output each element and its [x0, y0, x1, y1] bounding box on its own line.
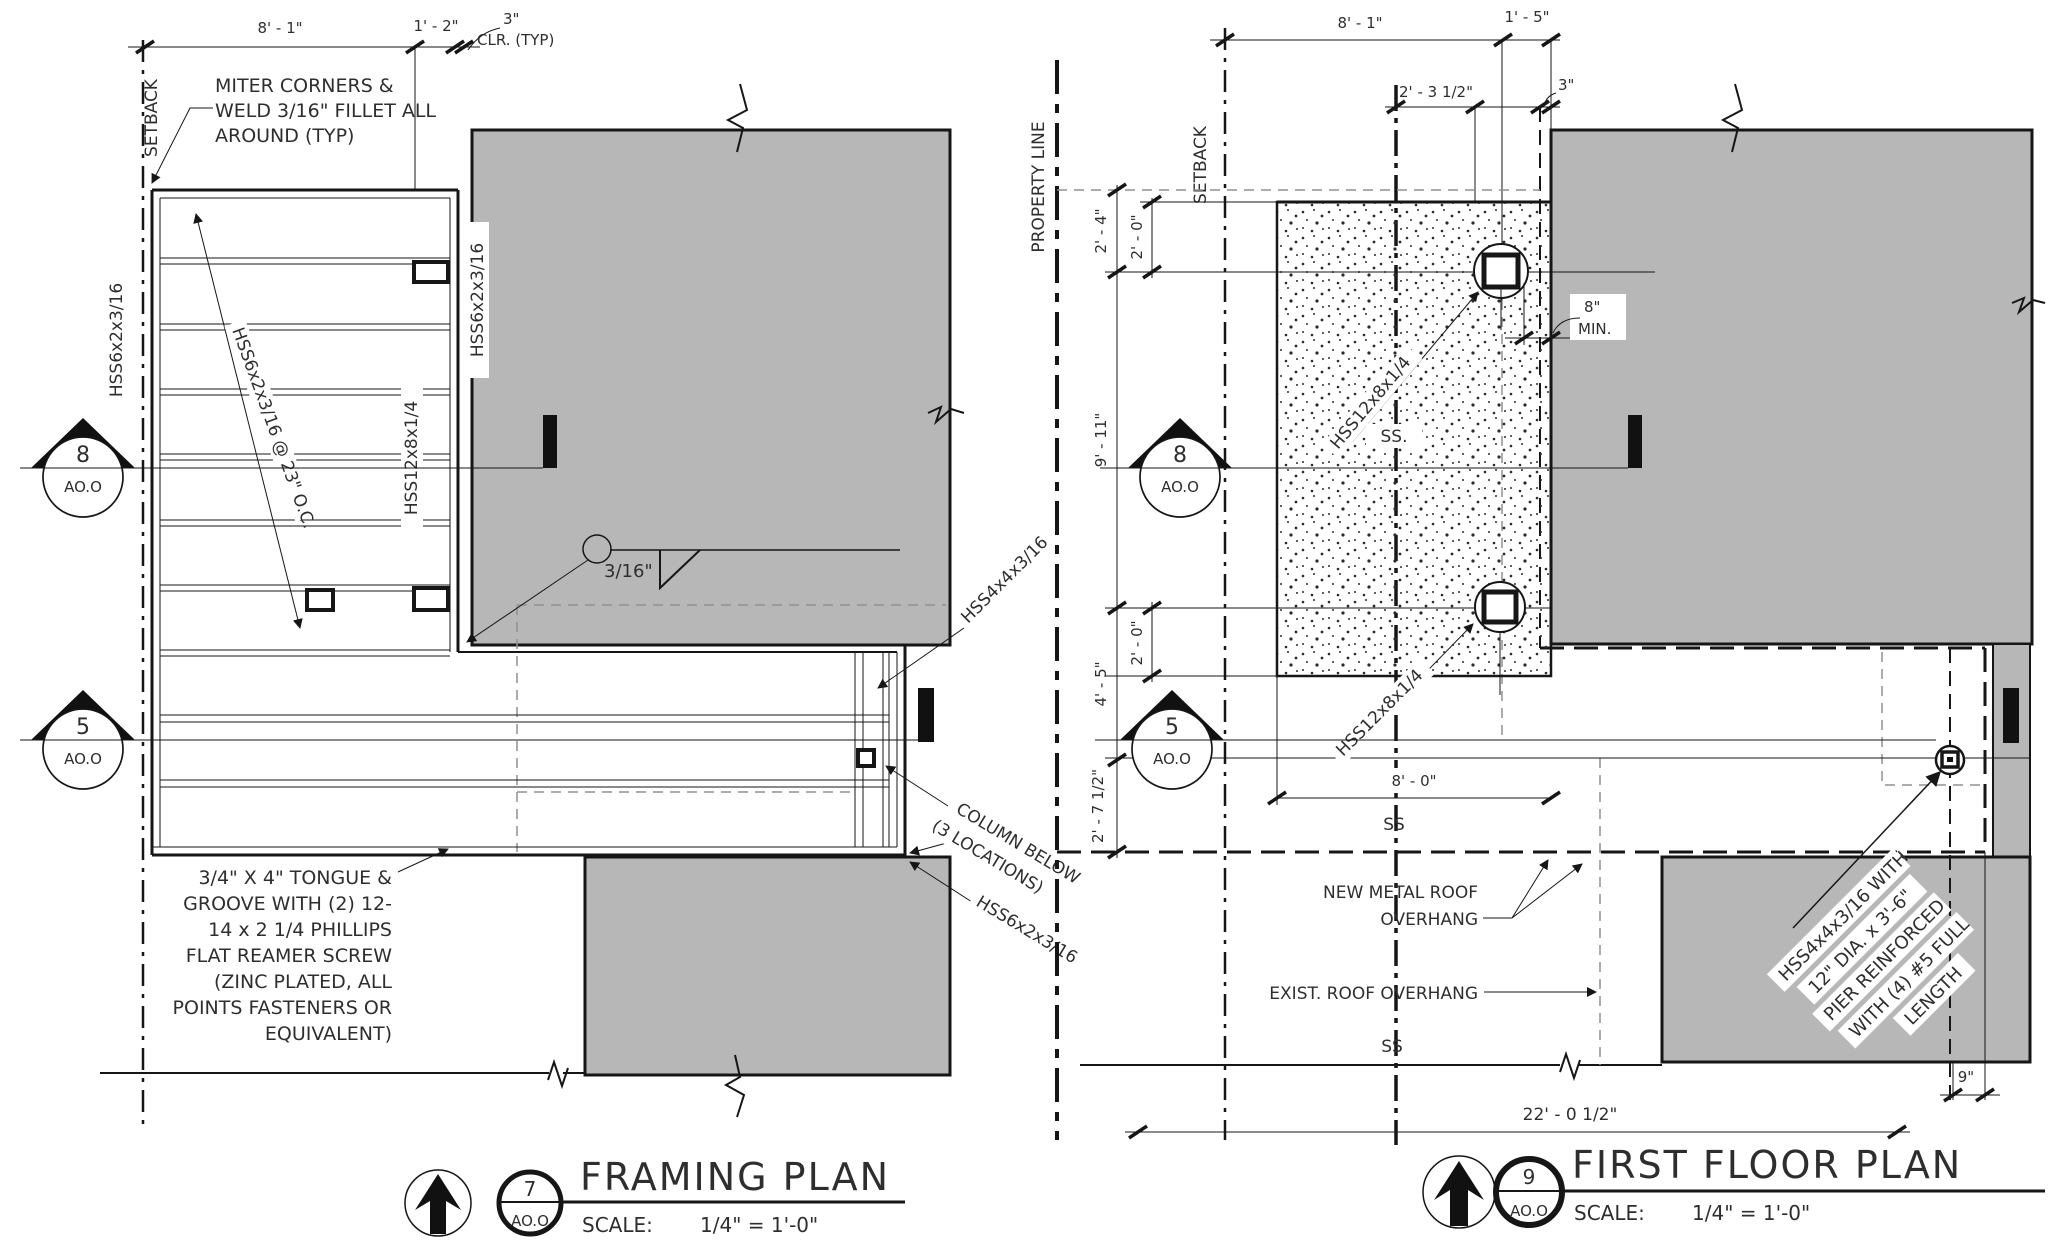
existing-building-lower — [585, 857, 950, 1117]
svg-text:HSS12x8x1/4: HSS12x8x1/4 — [402, 401, 422, 515]
svg-text:HSS12x8x1/4: HSS12x8x1/4 — [1332, 666, 1427, 761]
plan-title: FRAMING PLAN — [580, 1155, 890, 1199]
leader-line — [1512, 864, 1582, 918]
setback-label: SETBACK — [142, 78, 162, 157]
plan-title: FIRST FLOOR PLAN — [1572, 1143, 1962, 1187]
break-icon — [548, 1062, 568, 1086]
dim-slab-width: 8' - 0" — [1391, 772, 1436, 790]
svg-text:(ZINC PLATED, ALL: (ZINC PLATED, ALL — [214, 971, 392, 993]
detail-sheet: AO.O — [1510, 1202, 1548, 1220]
section-cut-flag — [918, 688, 934, 742]
section-cut-flag — [1628, 415, 1642, 468]
existing-overhang-dash — [1882, 652, 1983, 785]
leader-line — [1483, 860, 1548, 918]
svg-text:HSS4x4x3/16: HSS4x4x3/16 — [957, 533, 1052, 628]
dim-overall-width: 22' - 0 1/2" — [1523, 1105, 1618, 1125]
setback-label: SETBACK — [1191, 125, 1211, 204]
leader-line — [398, 849, 448, 872]
column-below-symbol — [858, 750, 874, 766]
svg-text:8: 8 — [1173, 443, 1187, 468]
first-floor-plan: PROPERTY LINE SETBACK — [1029, 8, 2045, 1228]
dim-corner-offset: 9" — [1958, 1068, 1974, 1086]
detail-number: 9 — [1523, 1165, 1536, 1189]
detail-sheet: AO.O — [511, 1212, 549, 1230]
dim-left-mid: 2' - 0" — [1128, 620, 1146, 665]
dim-clearance-note: CLR. (TYP) — [477, 31, 554, 49]
svg-text:SETBACK: SETBACK — [142, 78, 162, 157]
svg-text:14 x 2 1/4 PHILLIPS: 14 x 2 1/4 PHILLIPS — [208, 919, 392, 941]
beam-connection — [414, 262, 448, 282]
svg-text:AO.O: AO.O — [1161, 478, 1199, 496]
svg-text:POINTS FASTENERS OR: POINTS FASTENERS OR — [173, 997, 392, 1019]
ss-label-middle: SS — [1383, 815, 1405, 835]
dim-top-width: 8' - 1" — [257, 19, 302, 37]
member-label-joists: HSS6x2x3/16 @ 23" O.C. — [224, 319, 319, 532]
top-dimensions: 8' - 1" 1' - 5" 2' - 3 1/2" 3" — [1210, 8, 1574, 130]
member-label-girder: HSS12x8x1/4 — [401, 376, 423, 540]
member-label-corner-post: HSS4x4x3/16 — [954, 526, 1059, 631]
svg-text:3/4" X 4" TONGUE &: 3/4" X 4" TONGUE & — [198, 867, 392, 889]
svg-text:HSS6x2x3/16: HSS6x2x3/16 — [468, 243, 488, 357]
detail-number: 7 — [524, 1177, 537, 1201]
dim-bearing-note: MIN. — [1578, 320, 1611, 338]
svg-text:AO.O: AO.O — [64, 750, 102, 768]
dim-top-clearance: 3" — [1558, 76, 1574, 94]
joist-callout-leader — [196, 214, 300, 628]
slab-width-dimension: 8' - 0" SS — [1268, 768, 1560, 835]
dim-top-width: 8' - 1" — [1337, 14, 1382, 32]
dim-left-lower-a: 4' - 5" — [1092, 661, 1110, 706]
deck-band-lines — [160, 652, 889, 847]
svg-text:AROUND (TYP): AROUND (TYP) — [215, 125, 354, 147]
section-cut-flag — [543, 415, 557, 468]
svg-text:8: 8 — [76, 443, 90, 468]
svg-text:AO.O: AO.O — [64, 478, 102, 496]
scale-label: SCALE: — [582, 1213, 653, 1237]
ss-label-upper: SS. — [1366, 424, 1422, 448]
existing-building-upper — [472, 84, 964, 645]
member-label-face-beam: HSS6x2x3/16 — [467, 222, 489, 378]
dim-top-offset: 1' - 2" — [413, 17, 458, 35]
svg-text:SS.: SS. — [1381, 427, 1408, 447]
dim-left-span: 9' - 11" — [1092, 413, 1110, 468]
section-marker-5: 5 AO.O — [20, 690, 918, 789]
svg-text:WELD 3/16" FILLET ALL: WELD 3/16" FILLET ALL — [215, 100, 436, 122]
svg-text:GROOVE WITH (2) 12-: GROOVE WITH (2) 12- — [183, 893, 392, 915]
scale-value: 1/4" = 1'-0" — [1692, 1201, 1810, 1225]
framing-plan: SETBACK 8' - 1" 1' - 2" 3" CLR. (TYP) MI… — [20, 10, 1113, 1237]
dim-column-offset: 2' - 3 1/2" — [1399, 83, 1473, 101]
svg-text:HSS6x2x3/16: HSS6x2x3/16 — [107, 283, 127, 397]
existing-building-wall — [1993, 644, 2030, 857]
beam-connection — [414, 588, 448, 610]
north-arrow-icon — [1423, 1156, 1495, 1228]
miter-note: MITER CORNERS & WELD 3/16" FILLET ALL AR… — [152, 75, 436, 183]
break-icon — [1560, 1054, 1580, 1078]
dim-top-offset: 1' - 5" — [1504, 8, 1549, 26]
leader-line — [886, 766, 948, 806]
svg-text:NEW METAL ROOF: NEW METAL ROOF — [1323, 883, 1478, 903]
ss-label-lower: SS — [1381, 1037, 1403, 1057]
beam-connection — [307, 590, 333, 610]
svg-text:SETBACK: SETBACK — [1191, 125, 1211, 204]
property-line-label: PROPERTY LINE — [1029, 121, 1049, 252]
framing-plan-title: 7 AO.O FRAMING PLAN SCALE: 1/4" = 1'-0" — [405, 1155, 905, 1237]
dim-left-lower-b: 2' - 7 1/2" — [1089, 769, 1107, 843]
existing-building-upper — [1551, 84, 2045, 644]
svg-text:OVERHANG: OVERHANG — [1380, 910, 1478, 930]
bottom-dimensions: 9" 22' - 0 1/2" — [1125, 1068, 2000, 1138]
svg-text:HSS6x2x3/16 @ 23" O.C.: HSS6x2x3/16 @ 23" O.C. — [227, 325, 318, 531]
scale-label: SCALE: — [1574, 1201, 1645, 1225]
drawing-sheet: SETBACK 8' - 1" 1' - 2" 3" CLR. (TYP) MI… — [0, 0, 2048, 1251]
svg-text:PROPERTY LINE: PROPERTY LINE — [1029, 121, 1049, 252]
north-arrow-icon — [405, 1170, 471, 1236]
svg-text:EQUIVALENT): EQUIVALENT) — [265, 1023, 392, 1045]
dim-clearance: 3" — [503, 10, 519, 28]
dim-bearing: 8" — [1584, 298, 1600, 316]
svg-text:FLAT REAMER SCREW: FLAT REAMER SCREW — [186, 945, 392, 967]
deck-note: 3/4" X 4" TONGUE & GROOVE WITH (2) 12- 1… — [173, 849, 448, 1045]
weld-size: 3/16" — [604, 561, 653, 582]
dim-left-upper-b: 2' - 0" — [1128, 214, 1146, 259]
svg-text:MITER CORNERS &: MITER CORNERS & — [215, 75, 394, 97]
roof-notes: NEW METAL ROOF OVERHANG EXIST. ROOF OVER… — [1269, 860, 1596, 1057]
svg-text:EXIST. ROOF OVERHANG: EXIST. ROOF OVERHANG — [1269, 984, 1478, 1004]
scale-value: 1/4" = 1'-0" — [700, 1213, 818, 1237]
svg-text:5: 5 — [1165, 715, 1179, 740]
svg-text:AO.O: AO.O — [1153, 750, 1191, 768]
first-floor-plan-title: 9 AO.O FIRST FLOOR PLAN SCALE: 1/4" = 1'… — [1423, 1143, 2045, 1228]
plan-drawing: SETBACK 8' - 1" 1' - 2" 3" CLR. (TYP) MI… — [0, 0, 2048, 1251]
section-cut-flag — [2003, 688, 2019, 743]
column-3 — [1936, 746, 1964, 774]
member-label-edge-beam: HSS6x2x3/16 — [107, 283, 127, 397]
svg-text:5: 5 — [76, 715, 90, 740]
section-marker-5: 5 AO.O — [1095, 690, 1936, 789]
dim-left-upper-a: 2' - 4" — [1092, 208, 1110, 253]
